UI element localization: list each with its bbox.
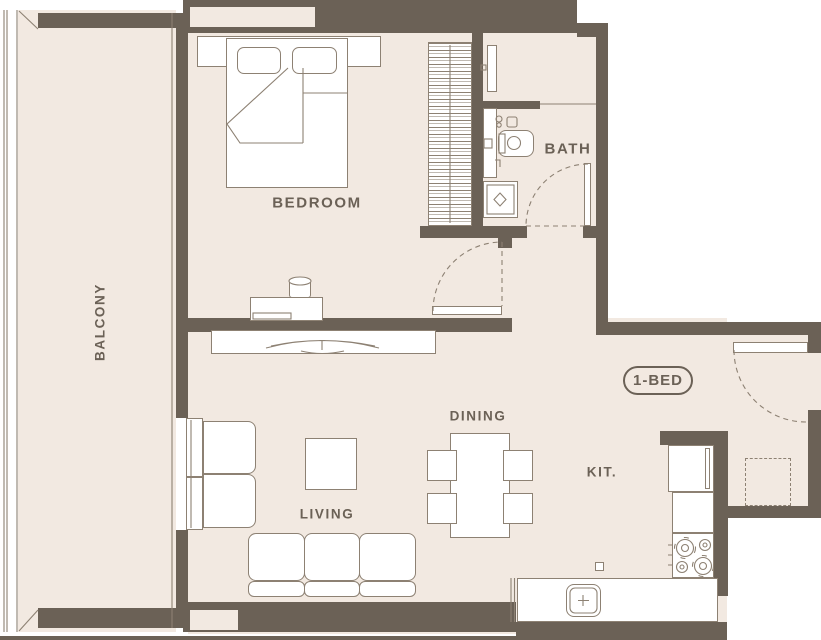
- wall-right-column: [596, 23, 608, 335]
- loveseat-cushion-bottom: [203, 474, 256, 528]
- washer-provision: [745, 458, 791, 506]
- wall-bath-bottom-left: [420, 226, 527, 238]
- sofa-seat-1: [248, 581, 305, 597]
- coffee-table: [305, 438, 357, 490]
- sofa-cushion-2: [304, 533, 360, 581]
- shower-tray: [483, 181, 518, 218]
- wall-entry-top: [596, 322, 821, 335]
- balcony-slider-bottom-sash: [186, 477, 203, 530]
- bedroom-top-window: [190, 7, 315, 27]
- sofa-cushion-1: [248, 533, 305, 581]
- loveseat-cushion-top: [203, 421, 256, 474]
- entrance-door-leaf: [733, 342, 808, 353]
- bedroom-door-leaf: [432, 306, 502, 315]
- dining-chair-tl: [427, 450, 457, 481]
- kitchen-label: KIT.: [587, 465, 617, 480]
- stove: [672, 533, 714, 578]
- dining-chair-br: [503, 493, 533, 524]
- wall-right-below-door: [808, 410, 821, 518]
- balcony-slider-top-sash: [186, 418, 203, 477]
- entry-door-threshold: [808, 353, 821, 410]
- kitchen-counter-lower: [517, 578, 718, 622]
- wall-balcony-bottom: [38, 608, 176, 628]
- dining-chair-bl: [427, 493, 457, 524]
- dining-table: [450, 433, 510, 538]
- bed-pillow-right: [292, 47, 337, 74]
- sink: [566, 584, 601, 617]
- fridge-door-line: [705, 448, 710, 489]
- bedroom-label: BEDROOM: [272, 195, 362, 212]
- floor-plan: BALCONY BEDROOM BATH DINING LIVING KIT. …: [0, 0, 821, 640]
- bed-pillow-left: [237, 47, 281, 74]
- desk: [250, 297, 323, 321]
- wall-nook-bottom: [723, 506, 821, 518]
- bath-label: BATH: [545, 141, 592, 158]
- toilet: [498, 130, 534, 157]
- wall-kitchen-right: [714, 431, 728, 596]
- wall-bath-bottom-right: [583, 226, 596, 238]
- balcony-label: BALCONY: [93, 283, 108, 361]
- dining-label: DINING: [450, 409, 507, 424]
- wall-bedroom-door-stub: [498, 238, 512, 248]
- wall-left-upper: [176, 13, 188, 418]
- wall-bottom-strip: [0, 636, 727, 640]
- sofa-cushion-3: [359, 533, 416, 581]
- dining-chair-tr: [503, 450, 533, 481]
- wall-balcony-top: [38, 13, 176, 28]
- unit-type-badge: 1-BED: [623, 366, 693, 395]
- wall-right-above-door: [808, 335, 821, 353]
- living-bottom-window: [190, 610, 238, 630]
- wall-wardrobe-right: [472, 33, 483, 238]
- tv-console: [211, 330, 436, 354]
- switch-symbol: [595, 562, 604, 571]
- sofa-seat-3: [359, 581, 416, 597]
- living-label: LIVING: [300, 507, 355, 522]
- wardrobe: [428, 42, 472, 226]
- bath-door-leaf: [584, 163, 591, 226]
- kitchen-counter-upper: [672, 492, 714, 533]
- desk-chair: [289, 279, 311, 298]
- sofa-seat-2: [304, 581, 360, 597]
- vanity-counter: [483, 108, 497, 178]
- shower-screen: [487, 45, 497, 92]
